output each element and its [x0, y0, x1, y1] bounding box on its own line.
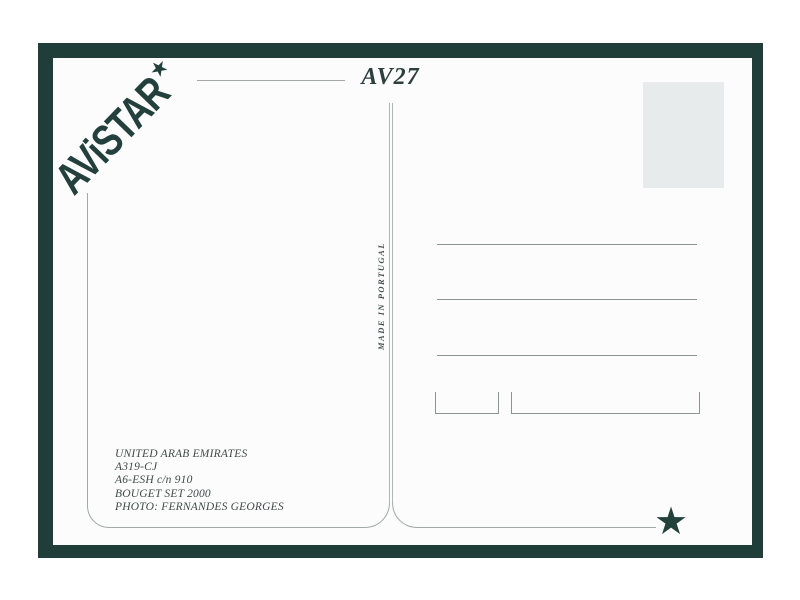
left-panel-border	[87, 193, 88, 505]
divider-line-right	[392, 103, 393, 503]
publisher-logo-text: AViSTAR	[45, 68, 180, 205]
star-icon: ★	[654, 502, 688, 540]
top-rule	[197, 80, 345, 81]
address-line	[437, 244, 697, 245]
postal-code-box-small	[435, 392, 499, 414]
postal-code-box-large	[511, 392, 700, 414]
right-panel-bottom-rule	[416, 527, 656, 528]
caption-line: PHOTO: FERNANDES GEORGES	[115, 501, 284, 514]
address-line	[437, 299, 697, 300]
stamp-box	[643, 82, 724, 188]
left-panel-bottom-rule	[109, 527, 365, 528]
divider-line-left	[389, 103, 390, 503]
card-number: AV27	[348, 64, 433, 91]
caption-block: UNITED ARAB EMIRATES A319-CJ A6-ESH c/n …	[115, 448, 284, 514]
postcard-border: AViSTAR★ AV27 MADE IN PORTUGAL UNITED AR…	[38, 43, 763, 558]
left-panel-corner	[87, 505, 110, 528]
postcard-back: AViSTAR★ AV27 MADE IN PORTUGAL UNITED AR…	[53, 58, 752, 545]
divider-curve-right	[392, 503, 417, 528]
made-in-portugal-label: MADE IN PORTUGAL	[376, 221, 388, 371]
caption-line: A6-ESH c/n 910	[115, 474, 284, 487]
caption-line: A319-CJ	[115, 461, 284, 474]
address-line	[437, 355, 697, 356]
divider-curve-left	[365, 503, 390, 528]
caption-line: BOUGET SET 2000	[115, 488, 284, 501]
publisher-logo: AViSTAR★	[37, 44, 199, 209]
caption-line: UNITED ARAB EMIRATES	[115, 448, 284, 461]
